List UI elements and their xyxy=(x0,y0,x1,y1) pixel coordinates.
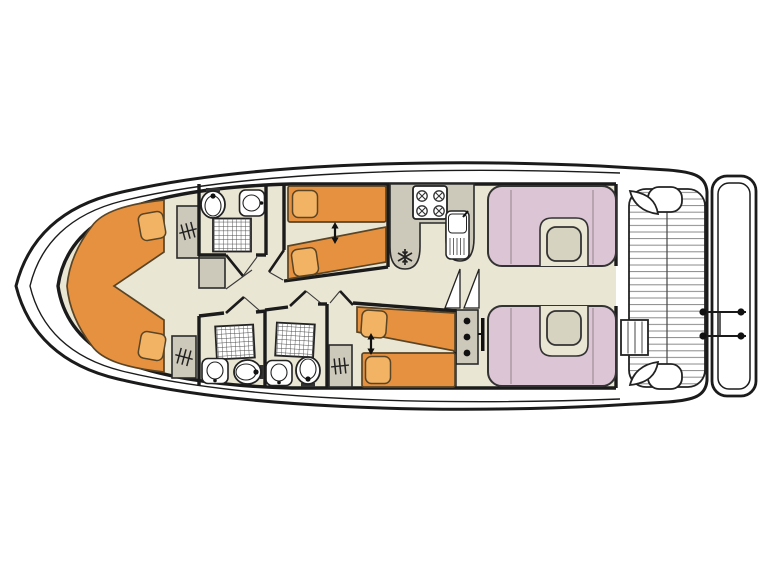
dinette-bottom xyxy=(488,306,616,386)
stove-icon xyxy=(413,186,447,219)
shower-icon xyxy=(215,325,255,360)
deck-steps xyxy=(621,320,648,355)
dinette-table xyxy=(547,227,581,261)
wardrobe-aft xyxy=(329,345,352,387)
cabinet xyxy=(199,258,225,288)
dinette-table xyxy=(547,311,581,345)
step-dot xyxy=(464,350,471,357)
boat-floor-plan xyxy=(0,0,768,576)
washbasin-icon xyxy=(266,361,292,386)
pillow xyxy=(293,191,318,218)
sink-icon xyxy=(446,211,469,259)
washbasin-icon xyxy=(240,190,265,216)
pillow xyxy=(361,310,388,339)
pillow xyxy=(137,211,166,242)
shower-icon xyxy=(213,219,251,252)
pillow xyxy=(291,247,320,277)
step-dot xyxy=(464,318,471,325)
pillow xyxy=(137,331,166,362)
dinette-top xyxy=(488,186,616,266)
handrail-bar xyxy=(481,318,485,351)
floor-plan-canvas xyxy=(0,0,768,576)
shower-icon xyxy=(275,323,315,358)
step-dot xyxy=(464,334,471,341)
washbasin-icon xyxy=(202,359,228,384)
pillow xyxy=(366,357,391,384)
